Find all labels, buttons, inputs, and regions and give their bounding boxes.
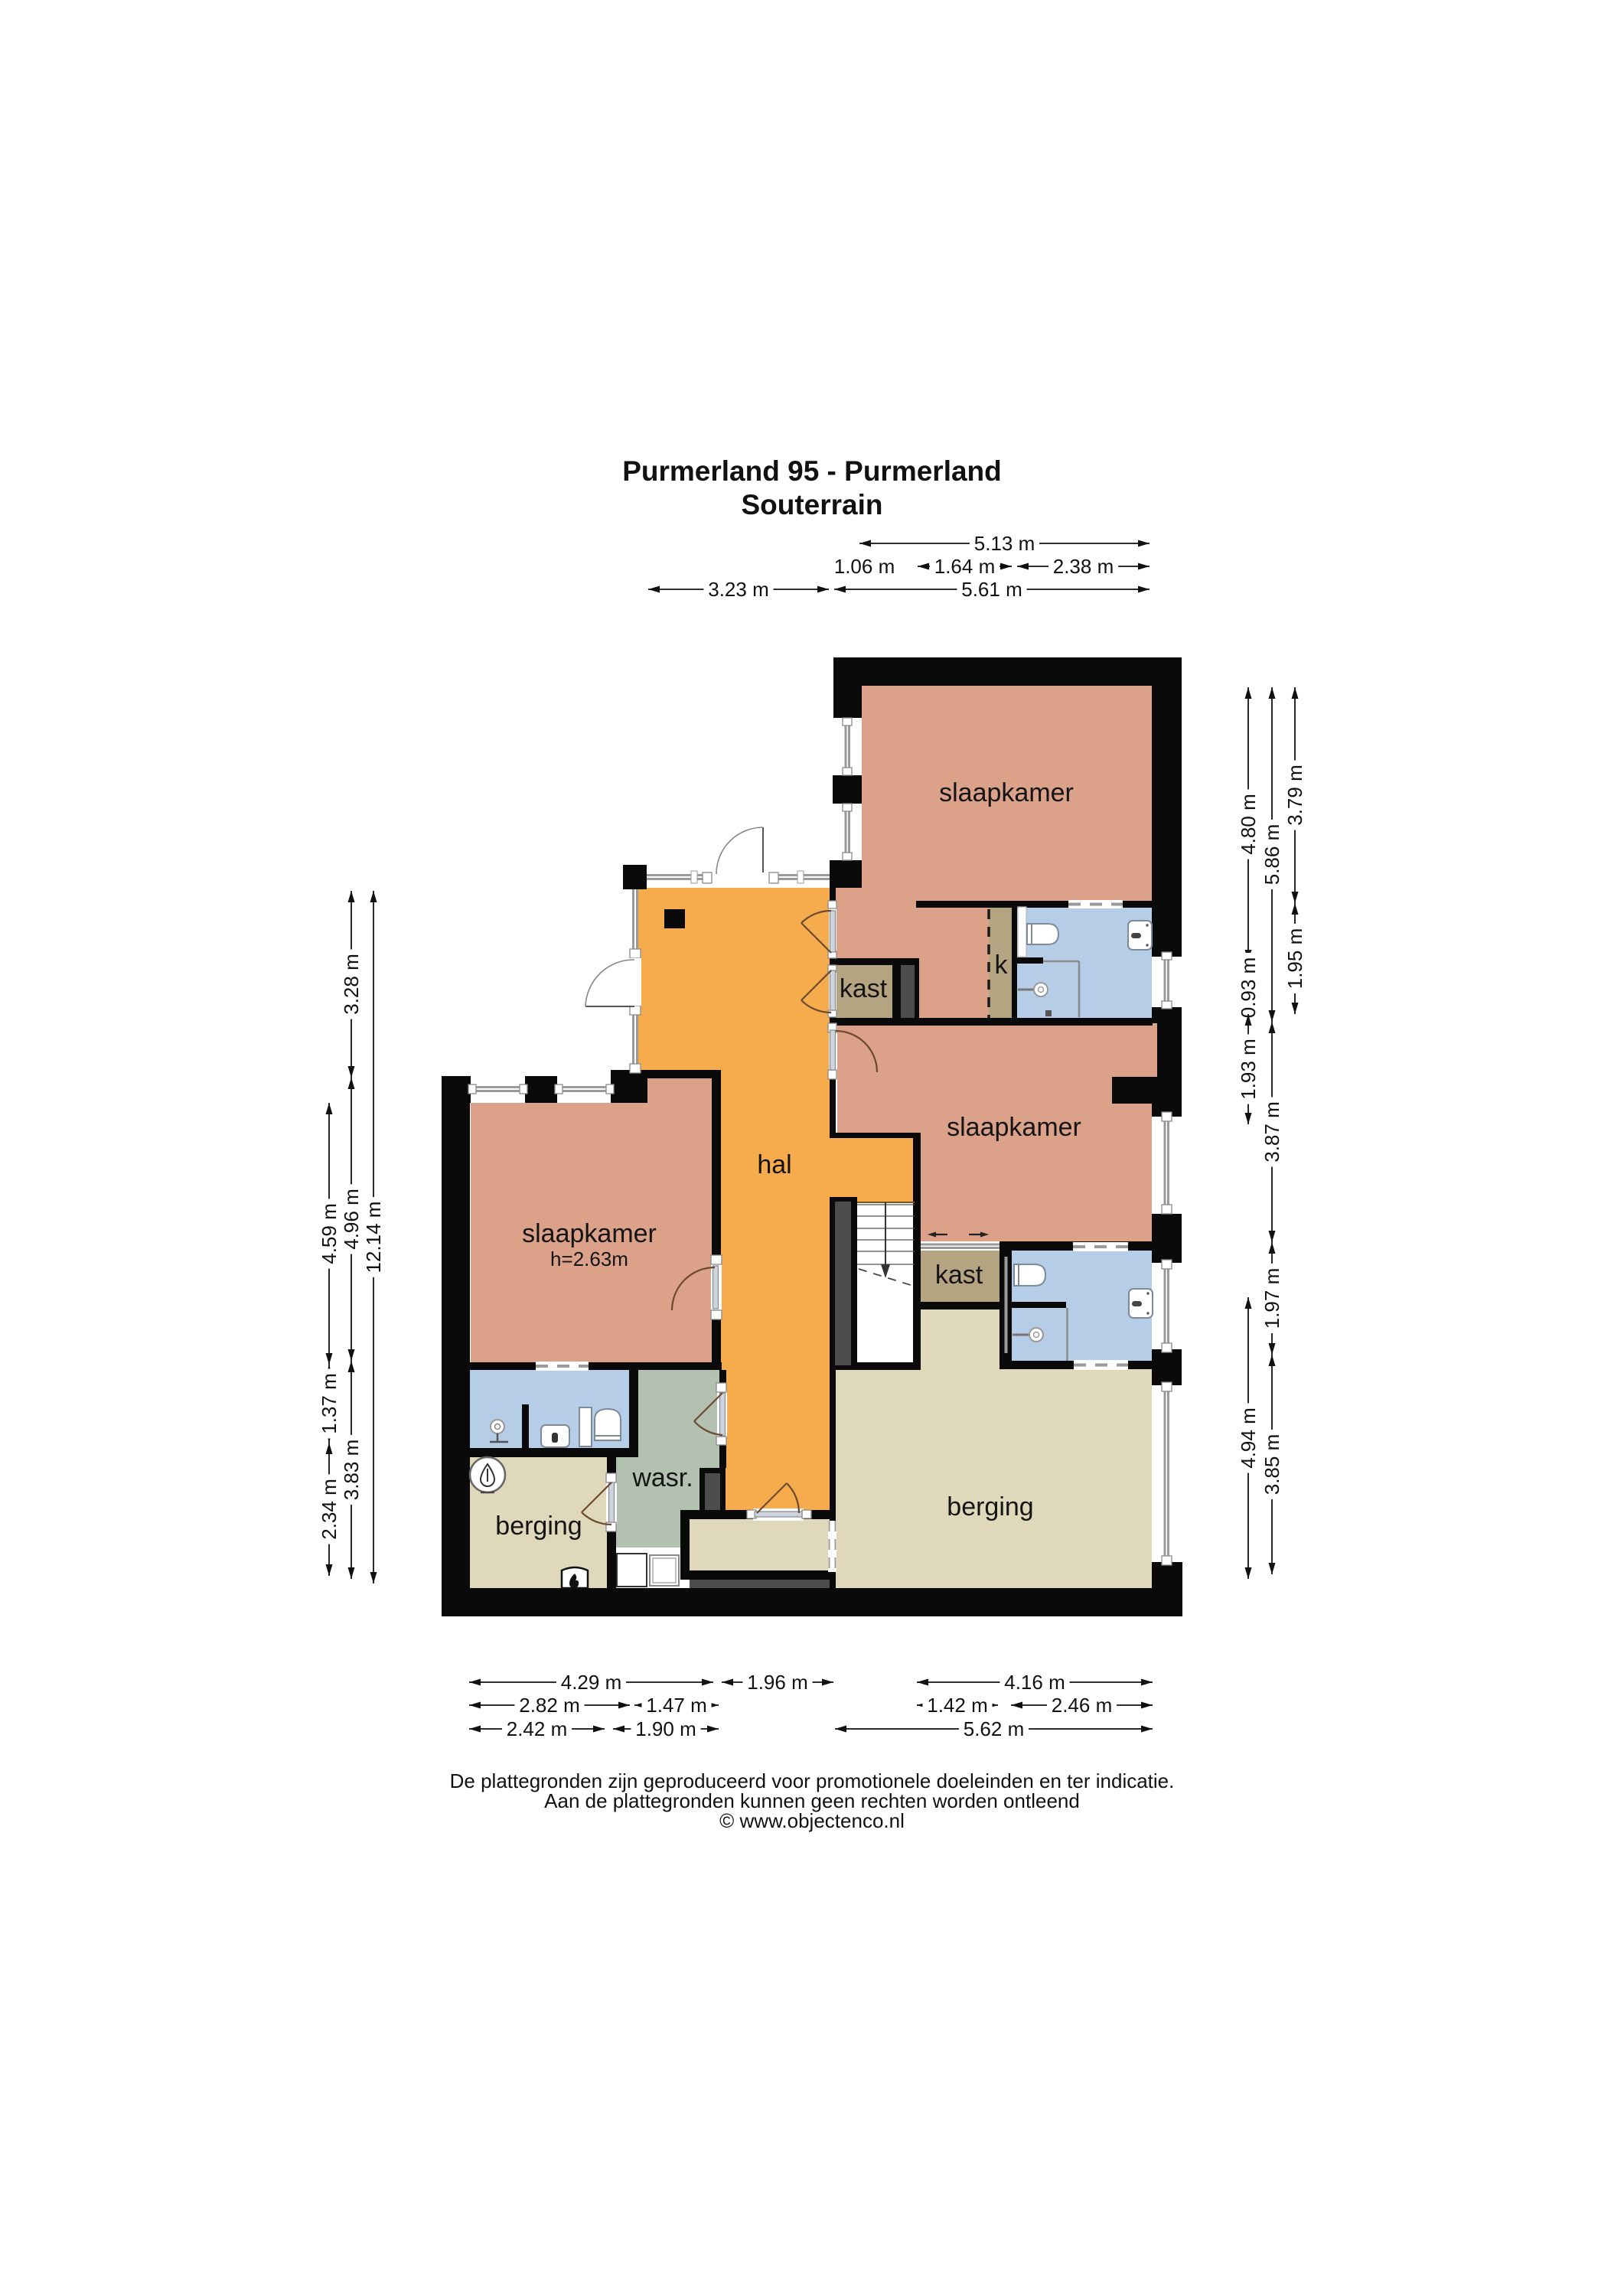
svg-text:berging: berging bbox=[947, 1492, 1033, 1521]
svg-text:wasr.: wasr. bbox=[631, 1463, 693, 1492]
svg-text:Purmerland 95 - Purmerland: Purmerland 95 - Purmerland bbox=[622, 455, 1002, 487]
svg-text:1.96 m: 1.96 m bbox=[747, 1671, 808, 1694]
svg-text:3.28 m: 3.28 m bbox=[340, 954, 363, 1015]
svg-text:4.96 m: 4.96 m bbox=[340, 1189, 363, 1250]
svg-text:1.64 m: 1.64 m bbox=[934, 555, 996, 578]
svg-text:1.42 m: 1.42 m bbox=[927, 1694, 988, 1717]
svg-text:1.93 m: 1.93 m bbox=[1237, 1039, 1260, 1100]
svg-text:4.80 m: 4.80 m bbox=[1237, 794, 1260, 855]
svg-text:Souterrain: Souterrain bbox=[741, 489, 882, 520]
svg-text:12.14 m: 12.14 m bbox=[362, 1202, 385, 1274]
svg-text:3.87 m: 3.87 m bbox=[1260, 1101, 1283, 1163]
svg-text:2.42 m: 2.42 m bbox=[507, 1717, 568, 1740]
svg-text:4.16 m: 4.16 m bbox=[1004, 1671, 1065, 1694]
svg-text:2.34 m: 2.34 m bbox=[318, 1479, 341, 1540]
svg-text:5.62 m: 5.62 m bbox=[964, 1717, 1025, 1740]
svg-text:1.90 m: 1.90 m bbox=[635, 1717, 696, 1740]
svg-text:1.47 m: 1.47 m bbox=[646, 1694, 707, 1717]
svg-text:slaapkamer: slaapkamer bbox=[522, 1219, 657, 1248]
svg-text:3.85 m: 3.85 m bbox=[1260, 1434, 1283, 1495]
svg-text:4.29 m: 4.29 m bbox=[561, 1671, 622, 1694]
svg-text:© www.objectenco.nl: © www.objectenco.nl bbox=[719, 1809, 905, 1832]
svg-text:kast: kast bbox=[935, 1261, 983, 1290]
svg-text:5.61 m: 5.61 m bbox=[961, 578, 1022, 601]
svg-text:2.38 m: 2.38 m bbox=[1053, 555, 1114, 578]
svg-text:3.23 m: 3.23 m bbox=[708, 578, 769, 601]
svg-text:1.37 m: 1.37 m bbox=[318, 1373, 341, 1434]
svg-text:slaapkamer: slaapkamer bbox=[947, 1113, 1081, 1142]
svg-text:4.59 m: 4.59 m bbox=[318, 1203, 341, 1264]
svg-text:1.97 m: 1.97 m bbox=[1260, 1268, 1283, 1329]
svg-text:2.82 m: 2.82 m bbox=[519, 1694, 580, 1717]
svg-text:1.95 m: 1.95 m bbox=[1283, 928, 1306, 990]
svg-text:5.13 m: 5.13 m bbox=[974, 532, 1035, 555]
svg-text:3.83 m: 3.83 m bbox=[340, 1440, 363, 1501]
svg-text:2.46 m: 2.46 m bbox=[1052, 1694, 1113, 1717]
svg-text:h=2.63m: h=2.63m bbox=[550, 1247, 628, 1270]
svg-text:k: k bbox=[995, 951, 1009, 980]
svg-text:0.93 m: 0.93 m bbox=[1237, 957, 1260, 1019]
svg-text:4.94 m: 4.94 m bbox=[1237, 1407, 1260, 1469]
svg-text:berging: berging bbox=[495, 1512, 582, 1541]
svg-text:hal: hal bbox=[757, 1150, 791, 1179]
svg-text:slaapkamer: slaapkamer bbox=[939, 778, 1074, 807]
svg-text:1.06 m: 1.06 m bbox=[834, 555, 895, 578]
svg-text:3.79 m: 3.79 m bbox=[1283, 765, 1306, 826]
svg-text:kast: kast bbox=[840, 974, 888, 1003]
svg-text:5.86 m: 5.86 m bbox=[1260, 824, 1283, 885]
